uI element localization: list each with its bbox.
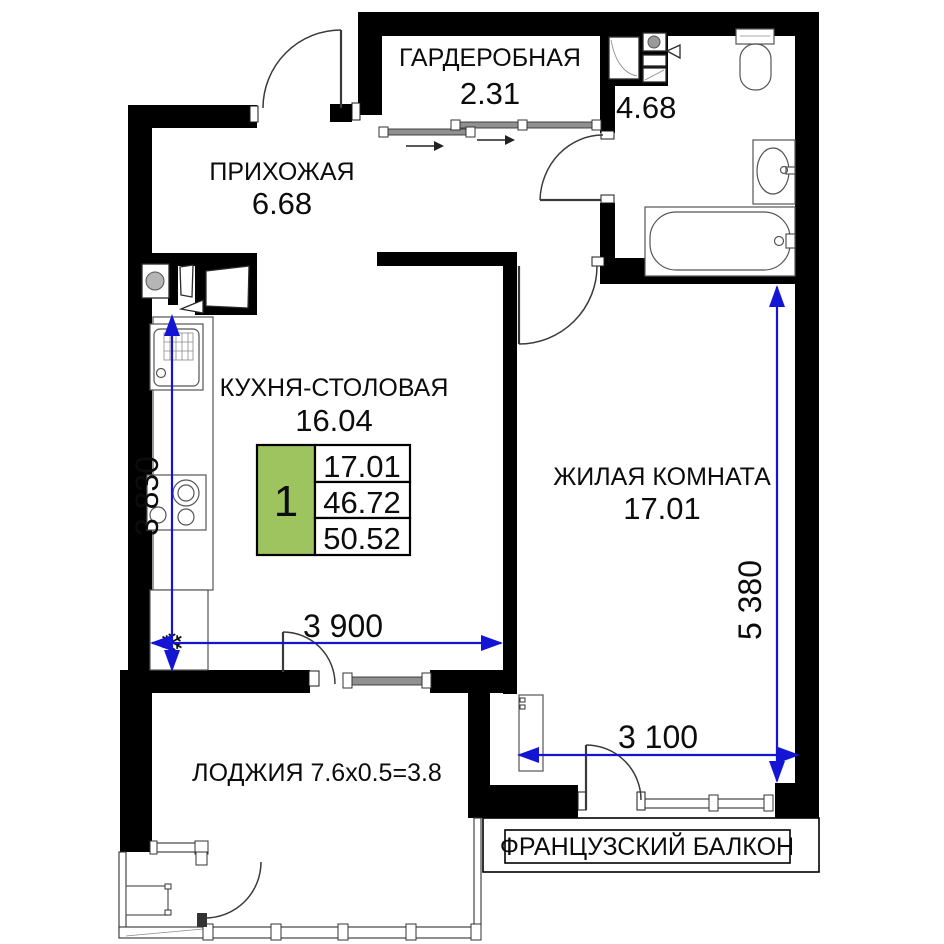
- loggia-side-glazing: [119, 852, 126, 932]
- mullion: [406, 924, 416, 940]
- bathroom-area: 4.68: [616, 90, 676, 125]
- wall-segment: [358, 12, 382, 115]
- wall-segment: [468, 785, 578, 818]
- meter-dial: [146, 272, 164, 290]
- hallway-area: 6.68: [252, 186, 312, 221]
- wall-segment: [775, 783, 819, 818]
- jamb: [578, 792, 586, 810]
- loggia-label: ЛОДЖИЯ 7.6х0.5=3.8: [192, 759, 442, 787]
- kitchen-label: КУХНЯ-СТОЛОВАЯ: [220, 374, 449, 402]
- legend-area-without-balcony: 46.72: [323, 485, 401, 520]
- shower-tray: [609, 37, 639, 79]
- bench-detail: [165, 910, 171, 915]
- window-cap: [343, 673, 352, 688]
- loggia-front-glazing: [119, 927, 476, 938]
- sliding-door-track: [526, 122, 594, 128]
- window-cap: [422, 673, 431, 688]
- mullion: [338, 924, 348, 940]
- legend-total-area: 50.52: [323, 521, 401, 556]
- track-cap: [466, 127, 475, 137]
- track-cap: [451, 120, 460, 130]
- loggia-bench: [126, 886, 168, 915]
- rail-post: [196, 852, 207, 865]
- jamb: [309, 671, 319, 686]
- wall-segment: [468, 693, 490, 785]
- toilet-tank: [736, 29, 774, 44]
- track-cap: [379, 127, 388, 137]
- loggia-side-glazing: [474, 818, 481, 926]
- kitchen-area: 16.04: [295, 403, 373, 438]
- meter-box: [643, 55, 666, 66]
- wall-segment: [503, 252, 517, 694]
- balcony-window: [716, 799, 766, 808]
- water-meter: [648, 36, 660, 48]
- dim-label-living-depth: 5 380: [732, 560, 768, 640]
- legend: 1 17.01 46.72 50.52: [257, 445, 410, 556]
- rail-post: [197, 913, 207, 927]
- wall-segment: [120, 670, 152, 852]
- wall-segment: [795, 12, 819, 783]
- track-cap: [592, 120, 601, 130]
- wardrobe-label: ГАРДЕРОБНАЯ: [399, 44, 581, 72]
- jamb: [592, 257, 604, 266]
- wall-segment: [430, 670, 517, 693]
- balcony-window: [645, 799, 710, 808]
- bath-tap: [786, 234, 795, 248]
- wall-segment: [128, 105, 152, 670]
- track-cap: [518, 120, 527, 130]
- mullion: [471, 924, 481, 940]
- mullion: [271, 924, 281, 940]
- rail-cap: [150, 841, 157, 854]
- french-balcony: ФРАНЦУЗСКИЙ БАЛКОН: [483, 818, 819, 872]
- radiator-detail: [520, 705, 525, 709]
- shaft-hatch-panel: [206, 266, 249, 308]
- shaft-door-panel: [180, 265, 193, 297]
- window-cap: [709, 795, 718, 811]
- jamb: [352, 103, 360, 120]
- wall-segment: [377, 252, 517, 266]
- floor-plan: ❄ 3 830 3 900 5 380 3 100 ГАРДЕРОБНАЯ: [0, 0, 944, 944]
- bench-detail: [165, 884, 171, 889]
- legend-rooms-count: 1: [274, 477, 298, 526]
- living-label: ЖИЛАЯ КОМНАТА: [553, 463, 771, 491]
- jamb: [250, 106, 258, 122]
- hallway-label: ПРИХОЖАЯ: [209, 158, 354, 186]
- dim-label-living-width: 3 100: [618, 719, 698, 755]
- jamb: [601, 195, 614, 203]
- dim-label-kitchen-depth: 3 830: [129, 456, 165, 536]
- wall-segment: [600, 203, 615, 260]
- radiator-detail: [520, 698, 525, 702]
- wardrobe-area: 2.31: [460, 76, 520, 111]
- wall-segment: [128, 105, 257, 128]
- french-balcony-label: ФРАНЦУЗСКИЙ БАЛКОН: [500, 831, 794, 861]
- legend-living-area: 17.01: [323, 449, 401, 484]
- bathtub-frame: [645, 207, 795, 276]
- loggia-rail: [154, 843, 198, 852]
- dim-label-kitchen-width: 3 900: [303, 608, 383, 644]
- living-area: 17.01: [623, 491, 701, 526]
- floor-plan-page: ❄ 3 830 3 900 5 380 3 100 ГАРДЕРОБНАЯ: [0, 0, 944, 944]
- window-cap: [764, 795, 773, 811]
- wall-segment: [128, 670, 310, 693]
- kitchen-window: [351, 677, 423, 685]
